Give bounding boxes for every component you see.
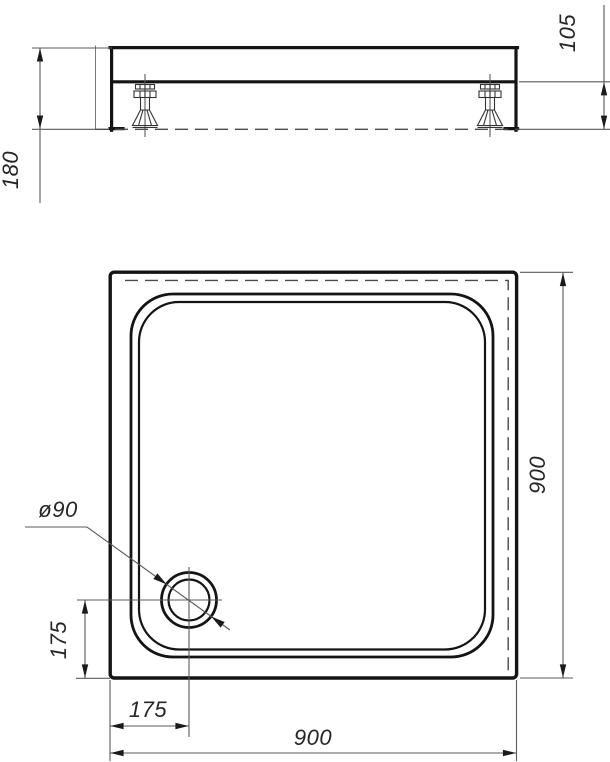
dim175v-arrow-down bbox=[82, 664, 88, 677]
right-leg bbox=[478, 74, 503, 137]
dia90-arrow-upper bbox=[153, 573, 166, 584]
basin-outer-edge bbox=[131, 294, 493, 657]
drawing-canvas: 180 105 ø90 bbox=[0, 0, 610, 762]
dim105-arrow-up bbox=[601, 82, 607, 95]
dim175h-arrow-left bbox=[110, 723, 123, 729]
dimension-drain-diameter: ø90 bbox=[25, 497, 230, 630]
dim105-label: 105 bbox=[555, 14, 580, 52]
left-leg-flange-thread bbox=[140, 85, 150, 90]
dim900v-arrow-up bbox=[560, 273, 566, 286]
dim175v-label: 175 bbox=[46, 621, 71, 659]
dimension-underside-height: 105 bbox=[519, 5, 610, 129]
tray-outer-rim bbox=[110, 272, 516, 678]
dia90-leader-line bbox=[25, 527, 230, 630]
hidden-skirt-edge bbox=[125, 280, 508, 676]
technical-drawing: 180 105 ø90 bbox=[0, 0, 610, 762]
dim105-arrow-down bbox=[601, 116, 607, 129]
dim900v-label: 900 bbox=[525, 456, 550, 494]
dim175h-arrow-right bbox=[175, 723, 188, 729]
dim900h-arrow-right bbox=[503, 750, 516, 756]
dia90-arrow-lower bbox=[211, 617, 224, 628]
dim180-arrow-up bbox=[37, 48, 43, 61]
side-view: 180 105 bbox=[0, 5, 610, 203]
dim175h-label: 175 bbox=[129, 697, 167, 722]
left-leg bbox=[133, 74, 158, 137]
left-leg-nut-thread bbox=[140, 91, 150, 98]
dim180-arrow-down bbox=[37, 116, 43, 129]
dim900h-arrow-left bbox=[110, 750, 123, 756]
dimension-outer-depth: 900 bbox=[520, 272, 573, 678]
dia90-label: ø90 bbox=[38, 497, 78, 522]
dimension-drain-offset-horizontal: 175 bbox=[110, 680, 189, 761]
dim900h-label: 900 bbox=[294, 725, 332, 750]
dim900v-arrow-down bbox=[560, 664, 566, 677]
right-leg-nut-thread bbox=[485, 91, 495, 98]
dim180-label: 180 bbox=[0, 151, 23, 189]
dimension-outer-width: 900 bbox=[110, 680, 517, 761]
basin-inner-edge bbox=[139, 302, 485, 650]
right-leg-flange-thread bbox=[485, 85, 495, 90]
dimension-drain-offset-vertical: 175 bbox=[46, 600, 110, 678]
dim175v-arrow-up bbox=[82, 600, 88, 613]
plan-view: ø90 175 175 900 bbox=[25, 272, 573, 761]
